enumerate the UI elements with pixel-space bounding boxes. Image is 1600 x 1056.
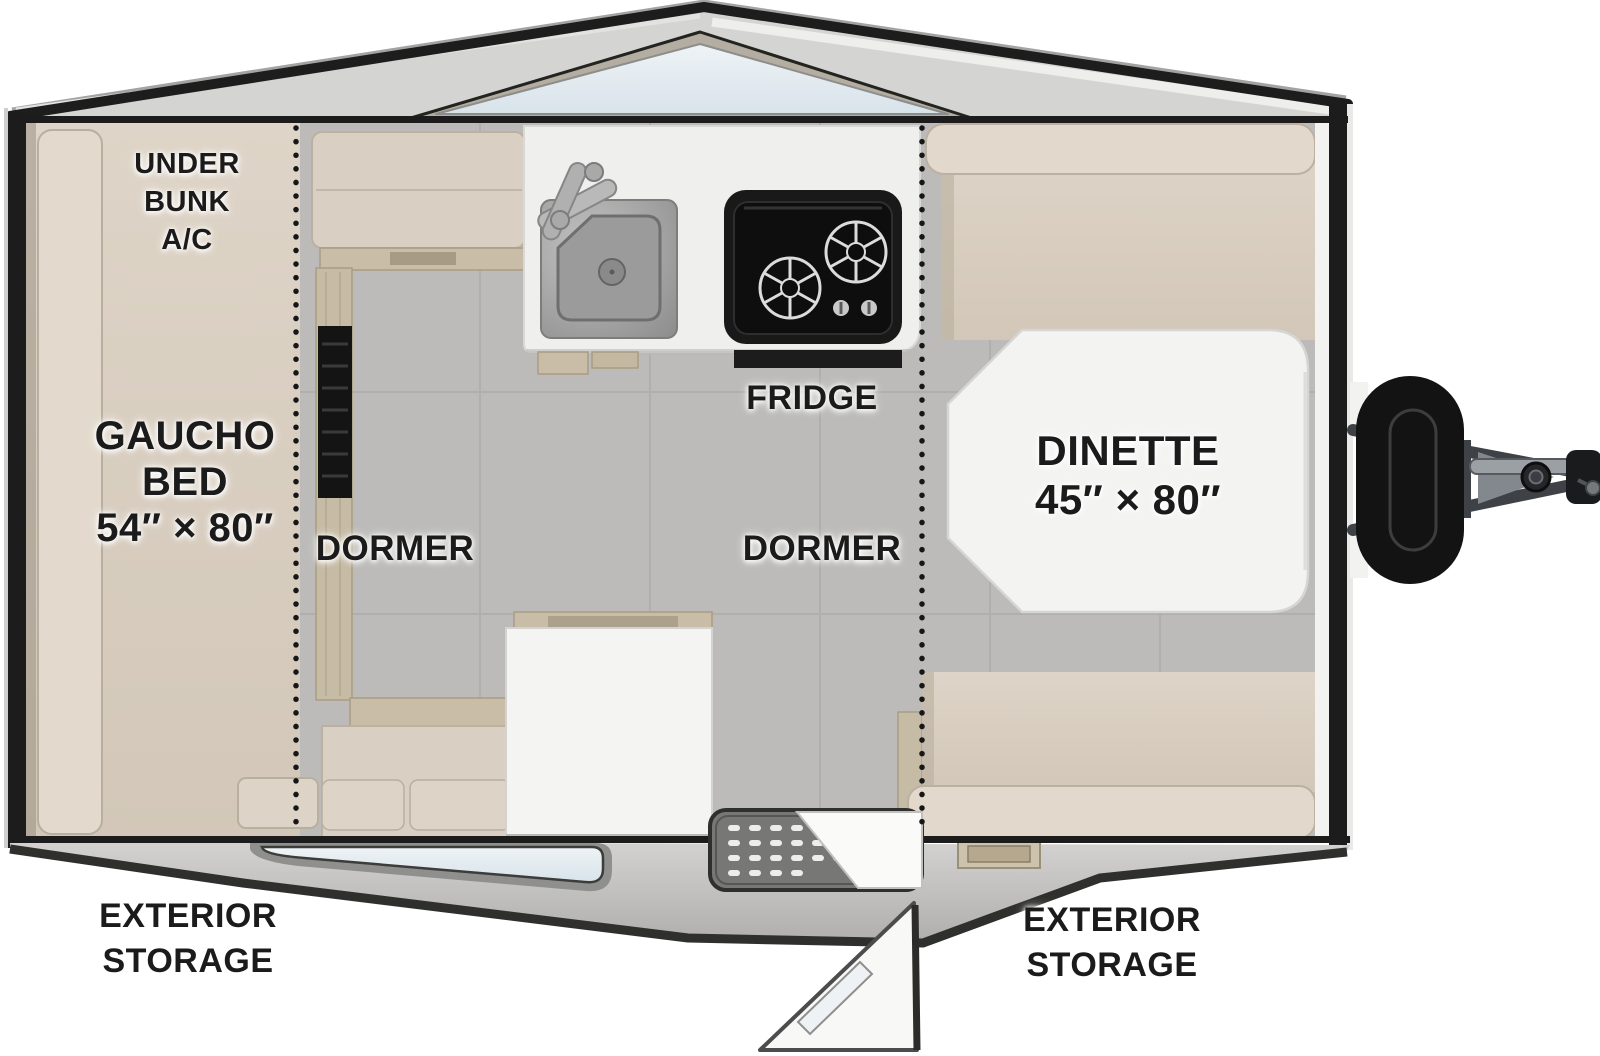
cabinet-box bbox=[506, 612, 712, 840]
cooktop-icon bbox=[724, 190, 902, 344]
label-under-bunk-ac: UNDER BUNK A/C bbox=[62, 150, 312, 264]
label-dinette: DINETTE 45″ × 80″ bbox=[978, 430, 1278, 528]
label-line: STORAGE bbox=[38, 944, 338, 978]
bottom-wall-line-left bbox=[8, 836, 712, 843]
exterior-hatch bbox=[958, 840, 1040, 868]
label-dormer-right: DORMER bbox=[722, 531, 922, 566]
label-line: 54″ × 80″ bbox=[35, 508, 335, 548]
bed-foot-cushion bbox=[238, 778, 318, 828]
dinette-bench-bottom bbox=[898, 672, 1315, 838]
label-line: 45″ × 80″ bbox=[978, 479, 1278, 521]
tongue-assembly bbox=[1350, 376, 1600, 584]
galley-bench-top bbox=[312, 132, 525, 270]
label-gaucho-bed: GAUCHO BED 54″ × 80″ bbox=[35, 416, 335, 554]
label-line: BUNK bbox=[62, 188, 312, 217]
floorplan-canvas: UNDER BUNK A/C GAUCHO BED 54″ × 80″ DORM… bbox=[0, 0, 1600, 1056]
rear-wall bbox=[8, 112, 26, 848]
dinette-bench-top bbox=[926, 124, 1315, 340]
label-line: EXTERIOR bbox=[38, 899, 338, 933]
bottom-wall-line-right bbox=[920, 836, 1350, 843]
label-dormer-left: DORMER bbox=[295, 531, 495, 566]
label-line: DINETTE bbox=[978, 430, 1278, 472]
label-exterior-storage-left: EXTERIOR STORAGE bbox=[38, 899, 338, 989]
label-line: UNDER bbox=[62, 150, 312, 179]
step-mat-icon bbox=[710, 810, 922, 890]
bench-bottom-left bbox=[322, 698, 512, 838]
front-wall bbox=[1329, 100, 1347, 850]
roof bbox=[10, 2, 1348, 122]
label-line: BED bbox=[35, 462, 335, 502]
label-line: A/C bbox=[62, 226, 312, 255]
label-line: EXTERIOR bbox=[962, 903, 1262, 937]
hitch-coupler-icon bbox=[1566, 450, 1600, 504]
fridge-cabinet bbox=[734, 350, 902, 368]
label-line: GAUCHO bbox=[35, 416, 335, 456]
label-fridge: FRIDGE bbox=[712, 381, 912, 415]
top-wall-line bbox=[8, 116, 1348, 123]
label-exterior-storage-right: EXTERIOR STORAGE bbox=[962, 903, 1262, 993]
propane-tank-icon bbox=[1356, 376, 1464, 584]
kitchen-counter bbox=[524, 126, 920, 374]
label-line: STORAGE bbox=[962, 948, 1262, 982]
